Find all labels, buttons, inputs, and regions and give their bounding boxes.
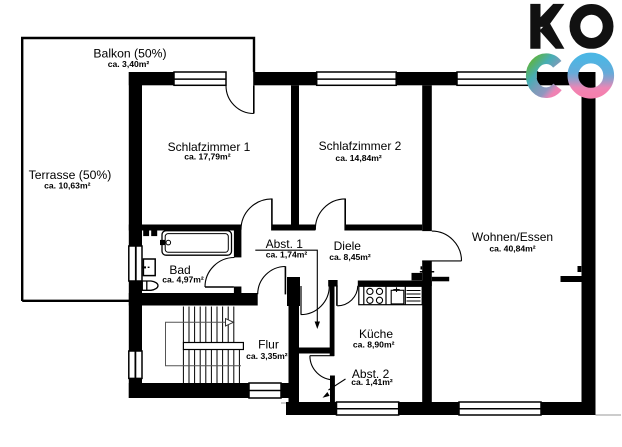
svg-text:ca. 1,41m²: ca. 1,41m² xyxy=(351,377,393,387)
svg-text:Wohnen/Essen: Wohnen/Essen xyxy=(472,230,553,244)
svg-text:Flur: Flur xyxy=(258,338,279,352)
svg-text:ca. 1,74m²: ca. 1,74m² xyxy=(266,250,308,260)
svg-text:ca. 3,40m²: ca. 3,40m² xyxy=(108,59,150,69)
svg-text:ca. 17,79m²: ca. 17,79m² xyxy=(184,152,230,162)
svg-text:ca. 8,90m²: ca. 8,90m² xyxy=(353,339,395,349)
svg-text:ca. 40,84m²: ca. 40,84m² xyxy=(489,243,535,253)
svg-text:ca. 8,45m²: ca. 8,45m² xyxy=(329,252,371,262)
svg-text:Diele: Diele xyxy=(334,239,362,253)
svg-text:ca. 4,97m²: ca. 4,97m² xyxy=(162,274,204,284)
svg-text:ca. 14,84m²: ca. 14,84m² xyxy=(335,153,381,163)
svg-text:ca. 10,63m²: ca. 10,63m² xyxy=(44,181,90,191)
svg-text:Schlafzimmer 2: Schlafzimmer 2 xyxy=(319,139,402,153)
svg-text:ca. 3,35m²: ca. 3,35m² xyxy=(246,351,288,361)
